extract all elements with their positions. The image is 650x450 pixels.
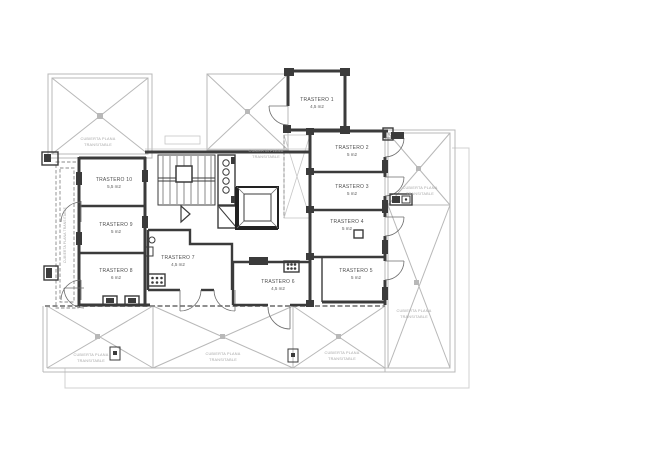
terrace-right-lower-label-2: TRANSITABLE [400,315,428,319]
room5-area: 5 m2 [351,275,362,280]
terrace-top-left-label-2: TRANSITABLE [84,143,112,147]
light-well [284,135,310,218]
room7-area: 4,5 m2 [171,262,185,267]
room6-area: 4,5 m2 [271,286,285,291]
terrace-left-strip-label: CUBIERTA PLANA TRANSITABLE [63,206,67,263]
terrace-top-center-label-2: TRANSITABLE [252,155,280,159]
room8-label: TRASTERO 8 [99,268,132,274]
vent-grille-icon [287,263,297,270]
room9-area: 5 m2 [111,229,122,234]
bottom-doors [180,290,290,329]
room4-label: TRASTERO 4 [330,219,363,225]
room2-label: TRASTERO 2 [335,145,368,151]
terrace-bottom-center-label-1: CUBIERTA PLANA [206,352,241,356]
terrace-right-upper-label-1: CUBIERTA PLANA [403,186,438,190]
room6-label: TRASTERO 6 [261,279,294,285]
room1-label: TRASTERO 1 [300,97,333,103]
room3-label: TRASTERO 3 [335,184,368,190]
terrace-bottom-left-label-2: TRANSITABLE [77,359,105,363]
vent-grille-icon [148,274,165,286]
terrace-bottom-right-label-2: TRANSITABLE [328,357,356,361]
room7-label: TRASTERO 7 [161,255,194,261]
terrace-bottom-left-label-1: CUBIERTA PLANA [74,353,109,357]
floorplan-drawing: TRASTERO 1 4,5 m2 TRASTERO 2 5 m2 TRASTE… [0,0,650,450]
room5-label: TRASTERO 5 [339,268,372,274]
terrace-right-upper-label-2: TRANSITABLE [406,192,434,196]
left-strip [42,152,78,308]
room9-label: TRASTERO 9 [99,222,132,228]
elevator [235,187,278,228]
room1-area: 4,5 m2 [310,104,324,109]
terrace-top-center-label-1: CUBIERTA PLANA [249,149,284,153]
terrace-bottom-right-label-1: CUBIERTA PLANA [325,351,360,355]
terrace-right-lower-label-1: CUBIERTA PLANA [397,309,432,313]
room10-label: TRASTERO 10 [96,177,132,183]
room4-shaft-symbol [354,230,363,238]
room2-area: 5 m2 [347,152,358,157]
room3-area: 5 m2 [347,191,358,196]
room4-area: 5 m2 [342,226,353,231]
room10-area: 5,5 m2 [107,184,121,189]
terrace-top-center [207,74,288,150]
room8-area: 6 m2 [111,275,122,280]
terrace-bottom-center-label-2: TRANSITABLE [209,358,237,362]
terrace-top-left-label-1: CUBIERTA PLANA [81,137,116,141]
floorplan-sheet: TRASTERO 1 4,5 m2 TRASTERO 2 5 m2 TRASTE… [0,0,650,450]
terrace-right [385,130,455,372]
stair-direction-arrow [181,206,190,222]
